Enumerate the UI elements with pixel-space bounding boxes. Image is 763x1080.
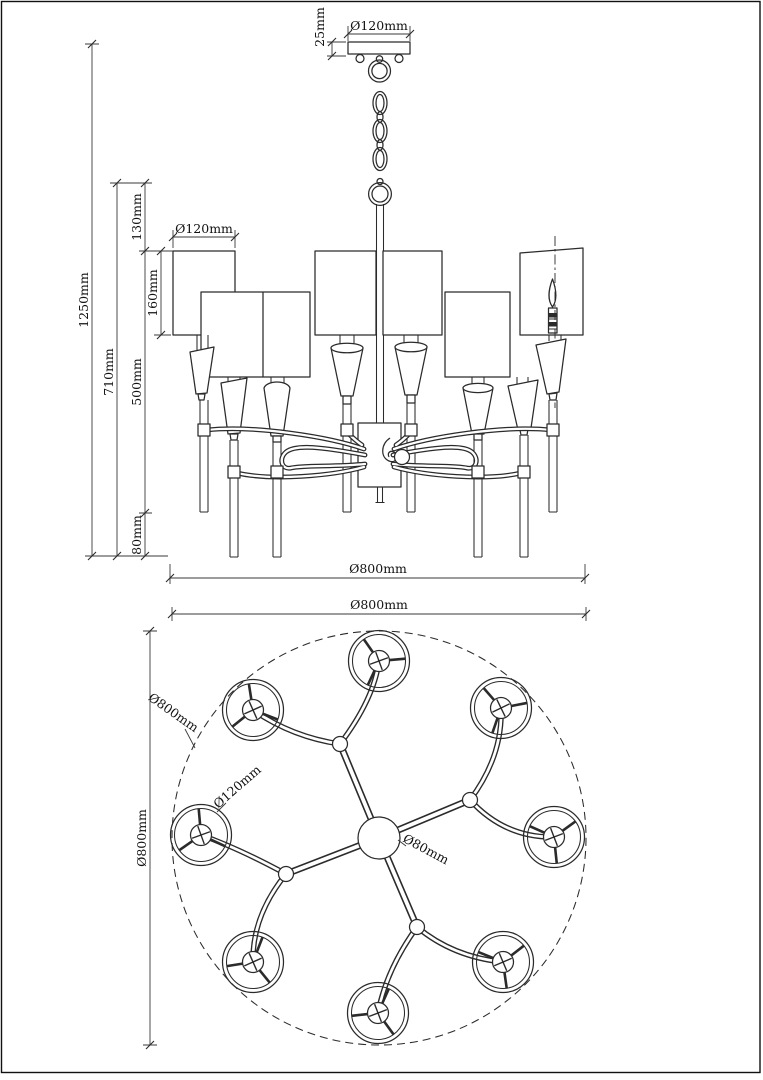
arm-ball: [395, 450, 410, 465]
canopy-plate: [348, 42, 410, 54]
shade-spoke: [389, 659, 405, 660]
dim-tip-length: 80mm: [129, 515, 144, 555]
page-background: [0, 0, 763, 1080]
shade-spoke: [555, 847, 557, 863]
dim-shade-diameter: Ø120mm: [175, 221, 233, 236]
chandelier-technical-drawing: Ø120mm 25mm 1250mm 710mm 130mm 500mm 80m…: [0, 0, 763, 1080]
arm-joint: [463, 793, 478, 808]
shade-front-left-pair: [201, 292, 310, 377]
shade-front-right: [445, 292, 510, 377]
dim-plan-width: Ø800mm: [350, 597, 408, 612]
shade-back-center-right: [383, 251, 442, 335]
dim-top-to-shade: 130mm: [129, 193, 144, 241]
plan-center-hub: [358, 817, 400, 859]
dim-shade-height: 160mm: [145, 269, 160, 317]
dim-plan-height: Ø800mm: [134, 809, 149, 867]
arm-joint: [333, 737, 348, 752]
arm-joint: [279, 867, 294, 882]
dim-body-height: 710mm: [101, 348, 116, 396]
shade-spoke: [199, 809, 200, 825]
shade-spoke: [352, 1014, 368, 1016]
dim-canopy-diameter: Ø120mm: [350, 18, 408, 33]
dim-body-diameter: Ø800mm: [349, 561, 407, 576]
dim-shade-to-tip: 500mm: [129, 358, 144, 406]
dim-overall-height: 1250mm: [76, 272, 91, 328]
arm-joint: [410, 920, 425, 935]
shade-back-center-left: [315, 251, 376, 335]
dim-canopy-height: 25mm: [312, 7, 327, 47]
